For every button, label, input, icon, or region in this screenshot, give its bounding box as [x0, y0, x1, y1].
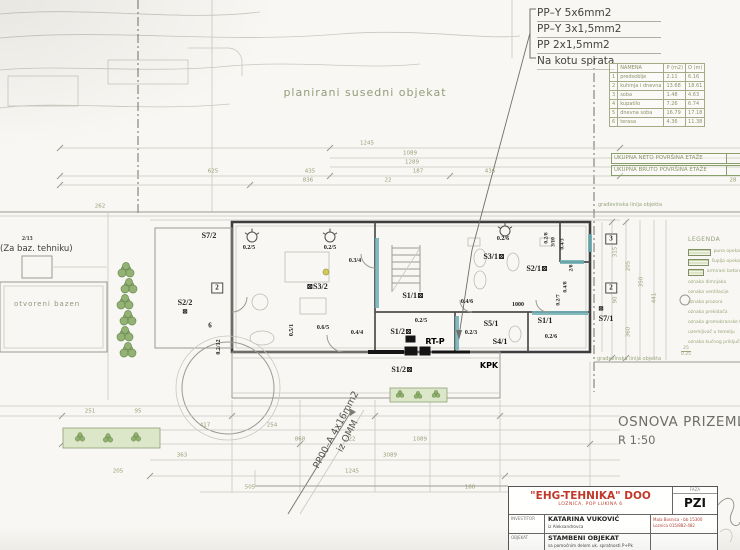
title-block: "EHG-TEHNIKA" DOO LOZNICA, POP LUKINA 6 … — [508, 486, 718, 550]
area-table-body: 1predsoblje2.116.162kuhinja i dnevna13.6… — [610, 73, 705, 127]
table-header — [610, 64, 618, 73]
dim-number: 251 — [85, 409, 96, 415]
dim-number: 436 — [485, 169, 496, 175]
area-totals: UKUPNA NETO POVRŠINA ETAŽE UKUPNA BRUTO … — [611, 153, 740, 177]
dim-number: 441 — [652, 293, 658, 304]
plan-label: 1000 — [512, 302, 524, 308]
dim-number: 1289 — [405, 160, 419, 166]
object-name: STAMBENI OBJEKAT — [548, 535, 647, 543]
drawing-scale: R 1:50 — [618, 433, 655, 447]
total-bruto-label: UKUPNA BRUTO POVRŠINA ETAŽE — [611, 165, 727, 176]
plan-label: RT-P — [425, 338, 444, 346]
plan-label: S1/1 — [538, 317, 553, 325]
plan-label: 0.3/4 — [349, 258, 361, 264]
plan-label: 3/10 — [551, 237, 557, 247]
dim-number: 360 — [626, 327, 632, 338]
total-bruto-value — [727, 165, 740, 176]
dim-number: 254 — [267, 423, 278, 429]
plan-label: 0.2/5 — [415, 318, 427, 324]
pool-tech-note: (Za baz. tehniku) — [0, 244, 73, 254]
swatch-icon — [688, 249, 711, 256]
dim-number: 435 — [305, 169, 316, 175]
dim-number: 1245 — [345, 469, 359, 475]
plan-label: 0.2/5 — [243, 245, 255, 251]
dim-number: 505 — [245, 485, 256, 491]
table-header: NAMENA — [618, 64, 664, 73]
object-description: sa pomoćnim delom uk. spratnosti P+Pk — [548, 543, 647, 548]
plan-label: S2/2 — [178, 299, 193, 307]
plan-label: 2 — [605, 283, 617, 294]
investor-origin: iz Aleksandrovca — [548, 524, 647, 529]
plan-label: ⊠ — [182, 309, 188, 316]
table-row: 4kupatilo7.266.74 — [610, 100, 705, 109]
cable-note-footer: Na kotu sprata — [537, 54, 615, 70]
dim-number: 417 — [200, 423, 211, 429]
table-row: 1predsoblje2.116.16 — [610, 73, 705, 82]
plan-label: S3/1⊠ — [483, 253, 504, 261]
empty-cell — [650, 534, 717, 550]
plan-label: S5/1 — [484, 320, 499, 328]
dim-number: 836 — [303, 178, 314, 184]
legend-title: LEGENDA — [688, 236, 740, 243]
legend: LEGENDA puna opekašuplja opekaarmirani b… — [688, 236, 740, 346]
legend-swatches: puna opekašuplja opekaarmirani beton — [688, 249, 740, 276]
swatch-icon — [688, 259, 709, 266]
plan-label: 0.4/3 — [560, 238, 566, 249]
plan-label: 0.2/5 — [324, 245, 336, 251]
floor-plan-sheet: S7/20.2/50.2/50.3/4⊠S3/22S2/2⊠60.5/10.6/… — [0, 0, 740, 550]
table-row: 5dnevna soba16.7917.18 — [610, 109, 705, 118]
elevation-mark-bottom: 0.25 — [681, 352, 691, 357]
legend-item: oznaka gromobranske trake — [688, 321, 740, 326]
plan-label: 0.2/12 — [216, 339, 222, 354]
cable-note-line: PP–Y 3x1,5mm2 — [537, 22, 661, 38]
dim-number: 160 — [465, 485, 476, 491]
plan-label: 0.4/6 — [461, 299, 473, 305]
dim-number: 262 — [95, 204, 106, 210]
dim-number: 625 — [208, 169, 219, 175]
dim-number: 1245 — [360, 141, 374, 147]
pool-label: otvoreni bazen — [14, 300, 80, 308]
legend-swatch: armirani beton — [688, 269, 740, 276]
plan-label: S1/1⊠ — [402, 292, 423, 300]
neighbor-building-label: planirani susedni objekat — [250, 86, 480, 99]
plan-label: 0.2/6 — [545, 334, 557, 340]
plan-label: S7/1 — [599, 315, 614, 323]
legend-item: oznaka ventilacije — [688, 291, 740, 296]
total-neto-label: UKUPNA NETO POVRŠINA ETAŽE — [611, 153, 727, 164]
pool-ref-number: 2/13 — [22, 236, 33, 242]
plan-label: S2/1⊠ — [526, 265, 547, 273]
plan-label: 0.2/7 — [556, 294, 562, 305]
legend-item: oznaka dimnjaka — [688, 281, 740, 286]
cable-notes: PP–Y 5x6mm2 PP–Y 3x1,5mm2 PP 2x1,5mm2 Na… — [537, 6, 661, 70]
dim-number: 1089 — [413, 437, 427, 443]
table-row: 6terasa4.3611.38 — [610, 118, 705, 127]
legend-swatch: šuplja opeka — [688, 259, 740, 266]
table-header: P (m2) — [664, 64, 686, 73]
plan-label: S7/2 — [202, 232, 217, 240]
plan-label: 0.4/8 — [563, 281, 569, 292]
plan-label: 0.2/6 — [497, 236, 509, 242]
plan-label: ⊠S3/2 — [306, 283, 327, 291]
plan-label: 6 — [208, 323, 212, 330]
plan-label: ⊠ — [598, 306, 604, 313]
cable-note-line: PP–Y 5x6mm2 — [537, 6, 661, 22]
plan-label: 3 — [605, 234, 617, 245]
dim-number: 205 — [113, 469, 124, 475]
total-neto-value — [727, 153, 740, 164]
dim-number: 3089 — [383, 453, 397, 459]
dim-number: 90 — [613, 297, 619, 304]
cable-note-line: PP 2x1,5mm2 — [537, 38, 661, 54]
plan-label: S4/1 — [493, 338, 508, 346]
object-label: OBJEKAT — [509, 534, 545, 550]
dim-number: 363 — [177, 453, 188, 459]
plan-label: 2/8 — [569, 264, 575, 271]
total-neto-row: UKUPNA NETO POVRŠINA ETAŽE — [611, 153, 740, 164]
plan-label: 0.4/4 — [351, 330, 363, 336]
building-line-label-top: građevinska linija objekta — [598, 202, 662, 208]
total-bruto-row: UKUPNA BRUTO POVRŠINA ETAŽE — [611, 165, 740, 176]
legend-item: oznaka prozora — [688, 301, 740, 306]
area-table-head: NAMENAP (m2)O (m) — [610, 64, 705, 73]
dim-number: 187 — [413, 169, 424, 175]
dim-number: 350 — [639, 277, 645, 288]
company-name: "EHG-TEHNIKA" DOO — [509, 490, 672, 502]
area-table: NAMENAP (m2)O (m) 1predsoblje2.116.162ku… — [609, 63, 705, 127]
legend-item: oznaka prekidača — [688, 311, 740, 316]
legend-item: uzemljivač u temelju — [688, 331, 740, 336]
plan-label: 0.2/8 — [544, 232, 550, 243]
plan-label: KPK — [480, 362, 498, 370]
dim-number: 28 — [730, 178, 737, 184]
table-header: O (m) — [686, 64, 705, 73]
plan-label: S1/2⊠ — [391, 366, 412, 374]
dim-number: 1089 — [403, 151, 417, 157]
company-address: LOZNICA, POP LUKINA 6 — [509, 502, 672, 507]
legend-item: oznaka kućnog priključka — [688, 341, 740, 346]
phase-value: PZI — [673, 494, 717, 512]
elevation-mark: 25 0.25 — [681, 346, 691, 358]
investor-name: KATARINA VUKOVIĆ — [548, 516, 647, 524]
investor-label: INVESTITOR — [509, 515, 545, 533]
legend-swatch: puna opeka — [688, 249, 740, 256]
plan-label: 0.6/5 — [317, 325, 329, 331]
dim-number: 205 — [626, 261, 632, 272]
plan-label: 0.5/1 — [289, 324, 295, 336]
plan-label: 2 — [211, 283, 223, 294]
swatch-icon — [688, 269, 704, 276]
dim-number: 315 — [613, 247, 619, 258]
plan-label: S1/2⊠ — [390, 328, 411, 336]
plan-label: 0.2/3 — [465, 330, 477, 336]
building-line-label-bottom: građevinska linija objekta — [597, 356, 661, 362]
drawing-title: OSNOVA PRIZEMLJA — [618, 414, 740, 430]
dim-number: 22 — [385, 178, 392, 184]
phase-label: FAZA — [673, 487, 717, 494]
table-row: 2kuhinja i dnevna13.6818.61 — [610, 82, 705, 91]
dim-number: 868 — [295, 437, 306, 443]
table-row: 3soba1.484.63 — [610, 91, 705, 100]
dim-number: 95 — [135, 409, 142, 415]
legend-items: oznaka dimnjakaoznaka ventilacijeoznaka … — [688, 281, 740, 346]
site-address-2: Loznica 015/882-482 — [653, 523, 715, 529]
